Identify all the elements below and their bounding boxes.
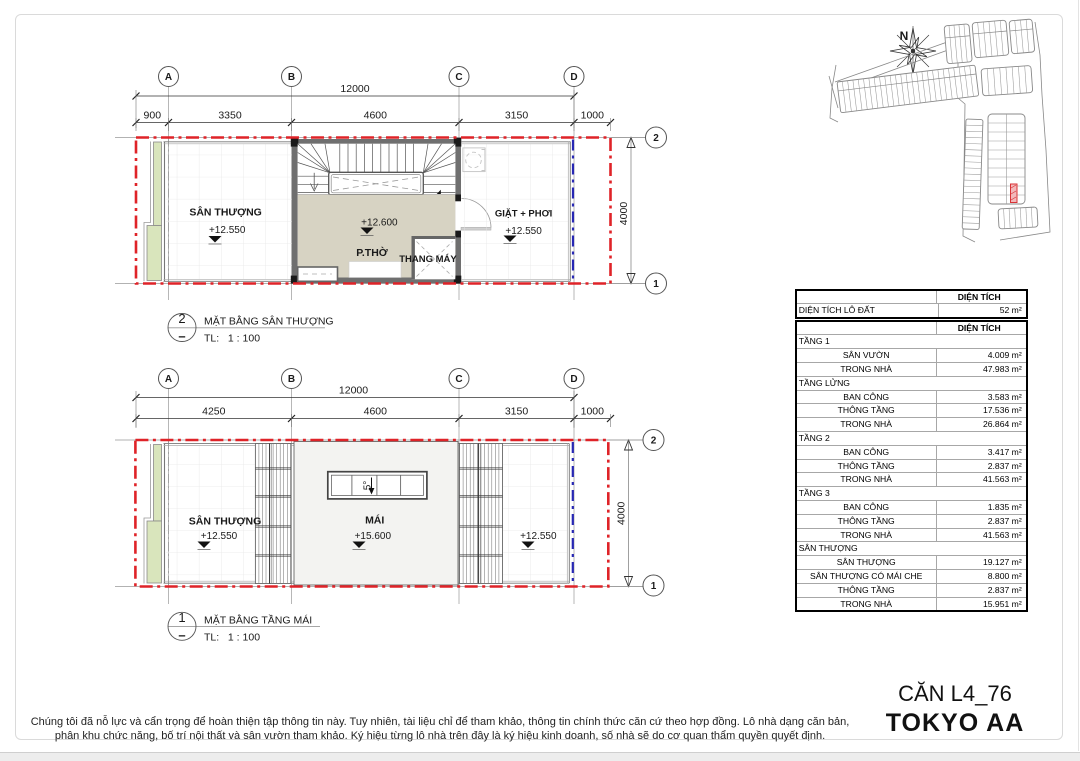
- svg-text:3350: 3350: [218, 110, 242, 122]
- svg-text:A: A: [165, 374, 172, 385]
- svg-text:N: N: [900, 29, 909, 43]
- svg-text:12000: 12000: [340, 83, 369, 95]
- svg-text:12000: 12000: [339, 385, 368, 397]
- svg-text:C: C: [455, 374, 462, 385]
- svg-text:+15.600: +15.600: [355, 531, 392, 542]
- svg-text:2: 2: [178, 311, 185, 326]
- svg-text:+12.550: +12.550: [209, 225, 246, 236]
- svg-text:+12.600: +12.600: [361, 218, 398, 229]
- svg-text:2: 2: [651, 436, 657, 447]
- svg-text:4250: 4250: [202, 406, 226, 418]
- svg-text:4600: 4600: [364, 406, 388, 418]
- svg-text:D: D: [570, 374, 577, 385]
- svg-text:B: B: [288, 374, 295, 385]
- svg-text:900: 900: [144, 110, 162, 122]
- svg-text:TL: 1 : 100: TL: 1 : 100: [204, 333, 260, 345]
- svg-text:3150: 3150: [505, 406, 529, 418]
- svg-text:4000: 4000: [616, 501, 628, 525]
- svg-text:TL: 1 : 100: TL: 1 : 100: [204, 631, 260, 643]
- svg-text:MẶT BẰNG SÂN THƯỢNG: MẶT BẰNG SÂN THƯỢNG: [204, 315, 334, 328]
- svg-text:3150: 3150: [505, 110, 529, 122]
- svg-text:1000: 1000: [581, 406, 605, 418]
- svg-text:MÁI: MÁI: [365, 514, 384, 527]
- svg-text:4000: 4000: [618, 202, 630, 226]
- svg-text:THANG MÁY: THANG MÁY: [399, 254, 457, 265]
- svg-text:SÂN THƯỢNG: SÂN THƯỢNG: [189, 206, 262, 219]
- svg-text:A: A: [165, 72, 172, 83]
- svg-text:MẶT BẰNG TẦNG MÁI: MẶT BẰNG TẦNG MÁI: [204, 613, 312, 626]
- svg-text:B: B: [288, 72, 295, 83]
- svg-text:+12.550: +12.550: [201, 531, 238, 542]
- svg-text:1: 1: [653, 279, 659, 290]
- svg-text:–: –: [178, 329, 185, 344]
- svg-text:SÂN THƯỢNG: SÂN THƯỢNG: [189, 515, 262, 528]
- svg-text:4600: 4600: [364, 110, 388, 122]
- svg-text:D: D: [570, 72, 577, 83]
- svg-text:1: 1: [178, 610, 185, 625]
- svg-text:2: 2: [653, 133, 659, 144]
- svg-text:1000: 1000: [581, 110, 605, 122]
- svg-text:P.THỜ: P.THỜ: [356, 246, 388, 259]
- svg-text:+12.550: +12.550: [520, 531, 557, 542]
- svg-text:C: C: [455, 72, 462, 83]
- svg-text:–: –: [178, 627, 185, 642]
- svg-text:GIẶT + PHƠI: GIẶT + PHƠI: [495, 208, 552, 219]
- svg-text:1: 1: [651, 581, 657, 592]
